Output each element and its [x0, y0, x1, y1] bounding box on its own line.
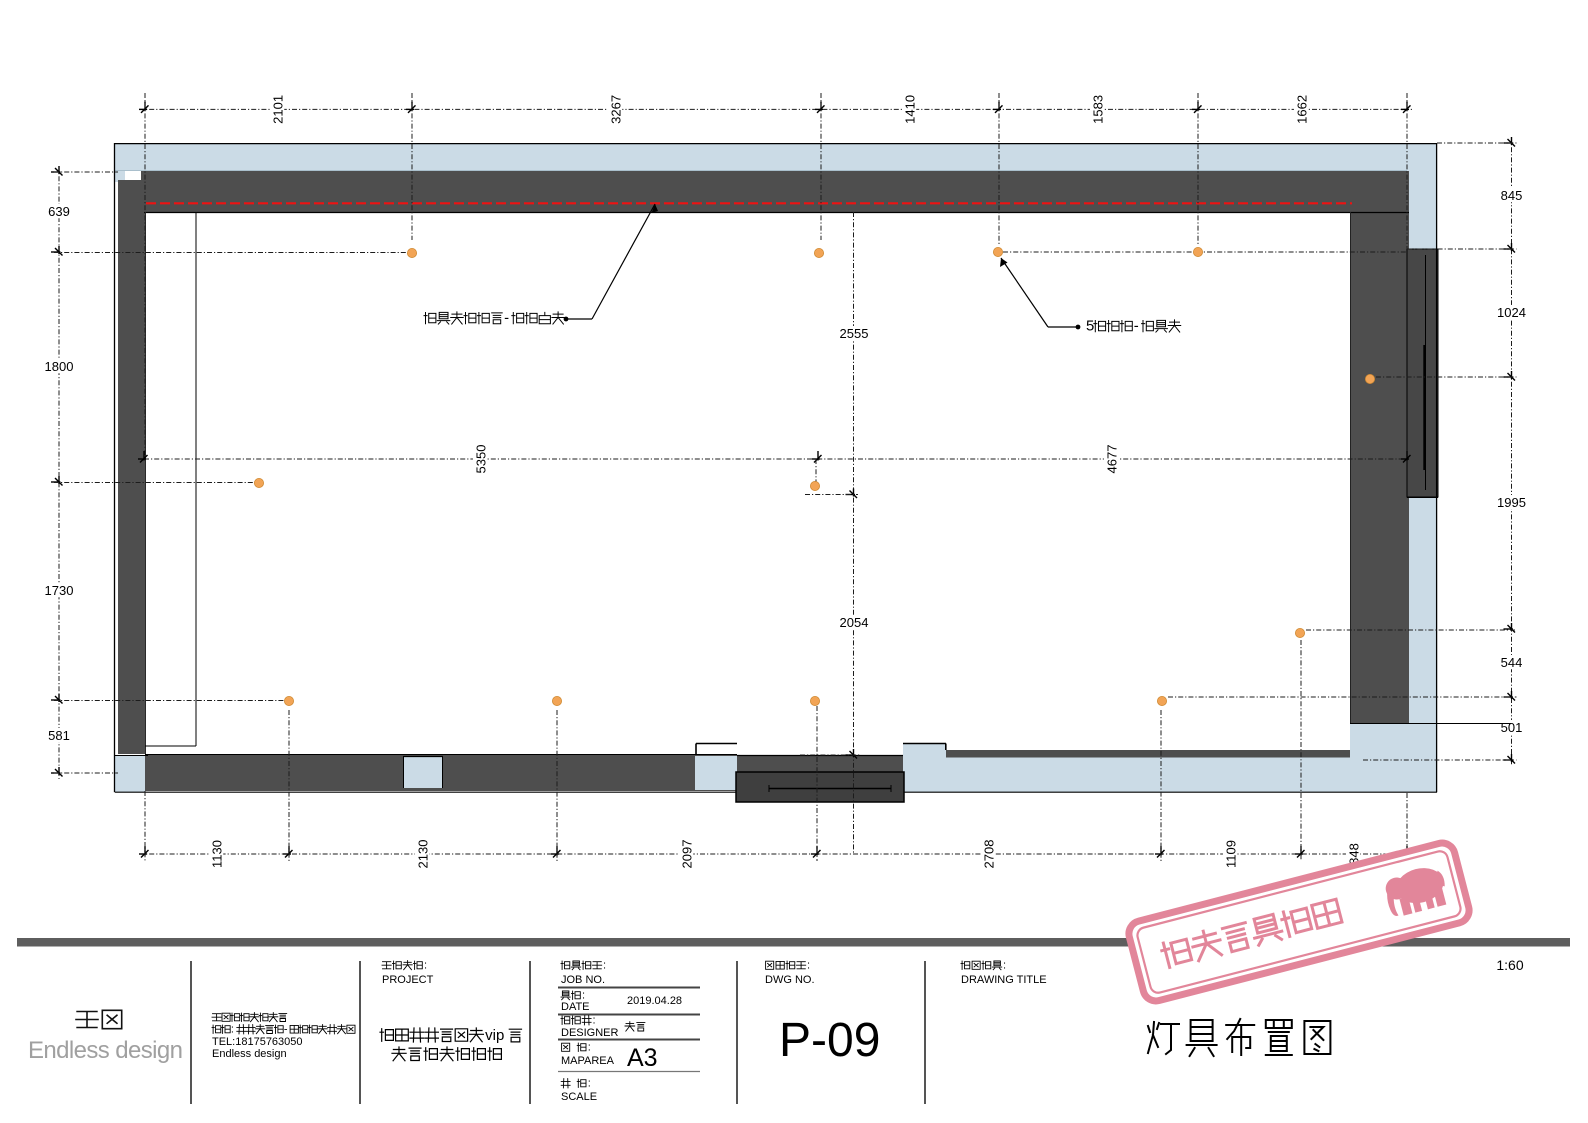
svg-text:639: 639 [48, 204, 70, 219]
svg-text:1109: 1109 [1223, 840, 1238, 868]
svg-text:581: 581 [48, 728, 70, 743]
svg-text:4677: 4677 [1104, 445, 1119, 474]
svg-text:DWG NO.: DWG NO. [765, 974, 815, 986]
svg-text:2101: 2101 [270, 95, 285, 124]
svg-text::: : [588, 1042, 591, 1054]
svg-text:2097: 2097 [679, 840, 694, 869]
svg-text:845: 845 [1501, 188, 1523, 203]
svg-text:-: - [1134, 319, 1139, 335]
svg-text:2054: 2054 [840, 615, 869, 630]
svg-text::: : [582, 990, 585, 1002]
svg-text:1130: 1130 [209, 840, 224, 868]
svg-text:JOB NO.: JOB NO. [561, 974, 605, 986]
svg-text:501: 501 [1501, 720, 1523, 735]
svg-text:1730: 1730 [45, 583, 74, 598]
svg-text:MAPAREA: MAPAREA [561, 1055, 615, 1067]
svg-text:DATE: DATE [561, 1001, 590, 1013]
svg-text:DESIGNER: DESIGNER [561, 1027, 619, 1039]
svg-text:DRAWING TITLE: DRAWING TITLE [961, 974, 1047, 986]
svg-text:3267: 3267 [608, 95, 623, 124]
svg-text:-: - [504, 311, 509, 327]
svg-text::: : [1003, 960, 1006, 972]
svg-text::: : [424, 960, 427, 972]
svg-text:1:60: 1:60 [1496, 957, 1523, 973]
svg-text:5350: 5350 [473, 445, 488, 474]
svg-text:A3: A3 [627, 1044, 658, 1072]
svg-text:5: 5 [1086, 319, 1094, 335]
svg-text:SCALE: SCALE [561, 1091, 597, 1103]
svg-text:-: - [284, 1024, 288, 1036]
svg-text:Endless design: Endless design [28, 1037, 182, 1064]
svg-text::: : [231, 1024, 234, 1036]
svg-text:1662: 1662 [1294, 95, 1309, 124]
svg-text:2708: 2708 [981, 840, 996, 869]
svg-text:PROJECT: PROJECT [382, 974, 434, 986]
svg-text::: : [807, 960, 810, 972]
svg-text:Endless design: Endless design [212, 1048, 287, 1060]
svg-text::: : [588, 1078, 591, 1090]
svg-text:vip: vip [485, 1027, 504, 1044]
svg-text:TEL:18175763050: TEL:18175763050 [212, 1036, 303, 1048]
svg-text:1995: 1995 [1497, 495, 1526, 510]
svg-text:1583: 1583 [1090, 95, 1105, 124]
svg-text:P-09: P-09 [779, 1014, 880, 1067]
svg-text:544: 544 [1501, 655, 1523, 670]
svg-text:1410: 1410 [902, 95, 917, 124]
svg-text:1024: 1024 [1497, 305, 1526, 320]
svg-text:2555: 2555 [840, 326, 869, 341]
svg-text:2130: 2130 [415, 840, 430, 869]
svg-text:1800: 1800 [45, 359, 74, 374]
svg-text::: : [593, 1015, 596, 1027]
svg-text::: : [603, 960, 606, 972]
svg-text:2019.04.28: 2019.04.28 [627, 995, 682, 1007]
